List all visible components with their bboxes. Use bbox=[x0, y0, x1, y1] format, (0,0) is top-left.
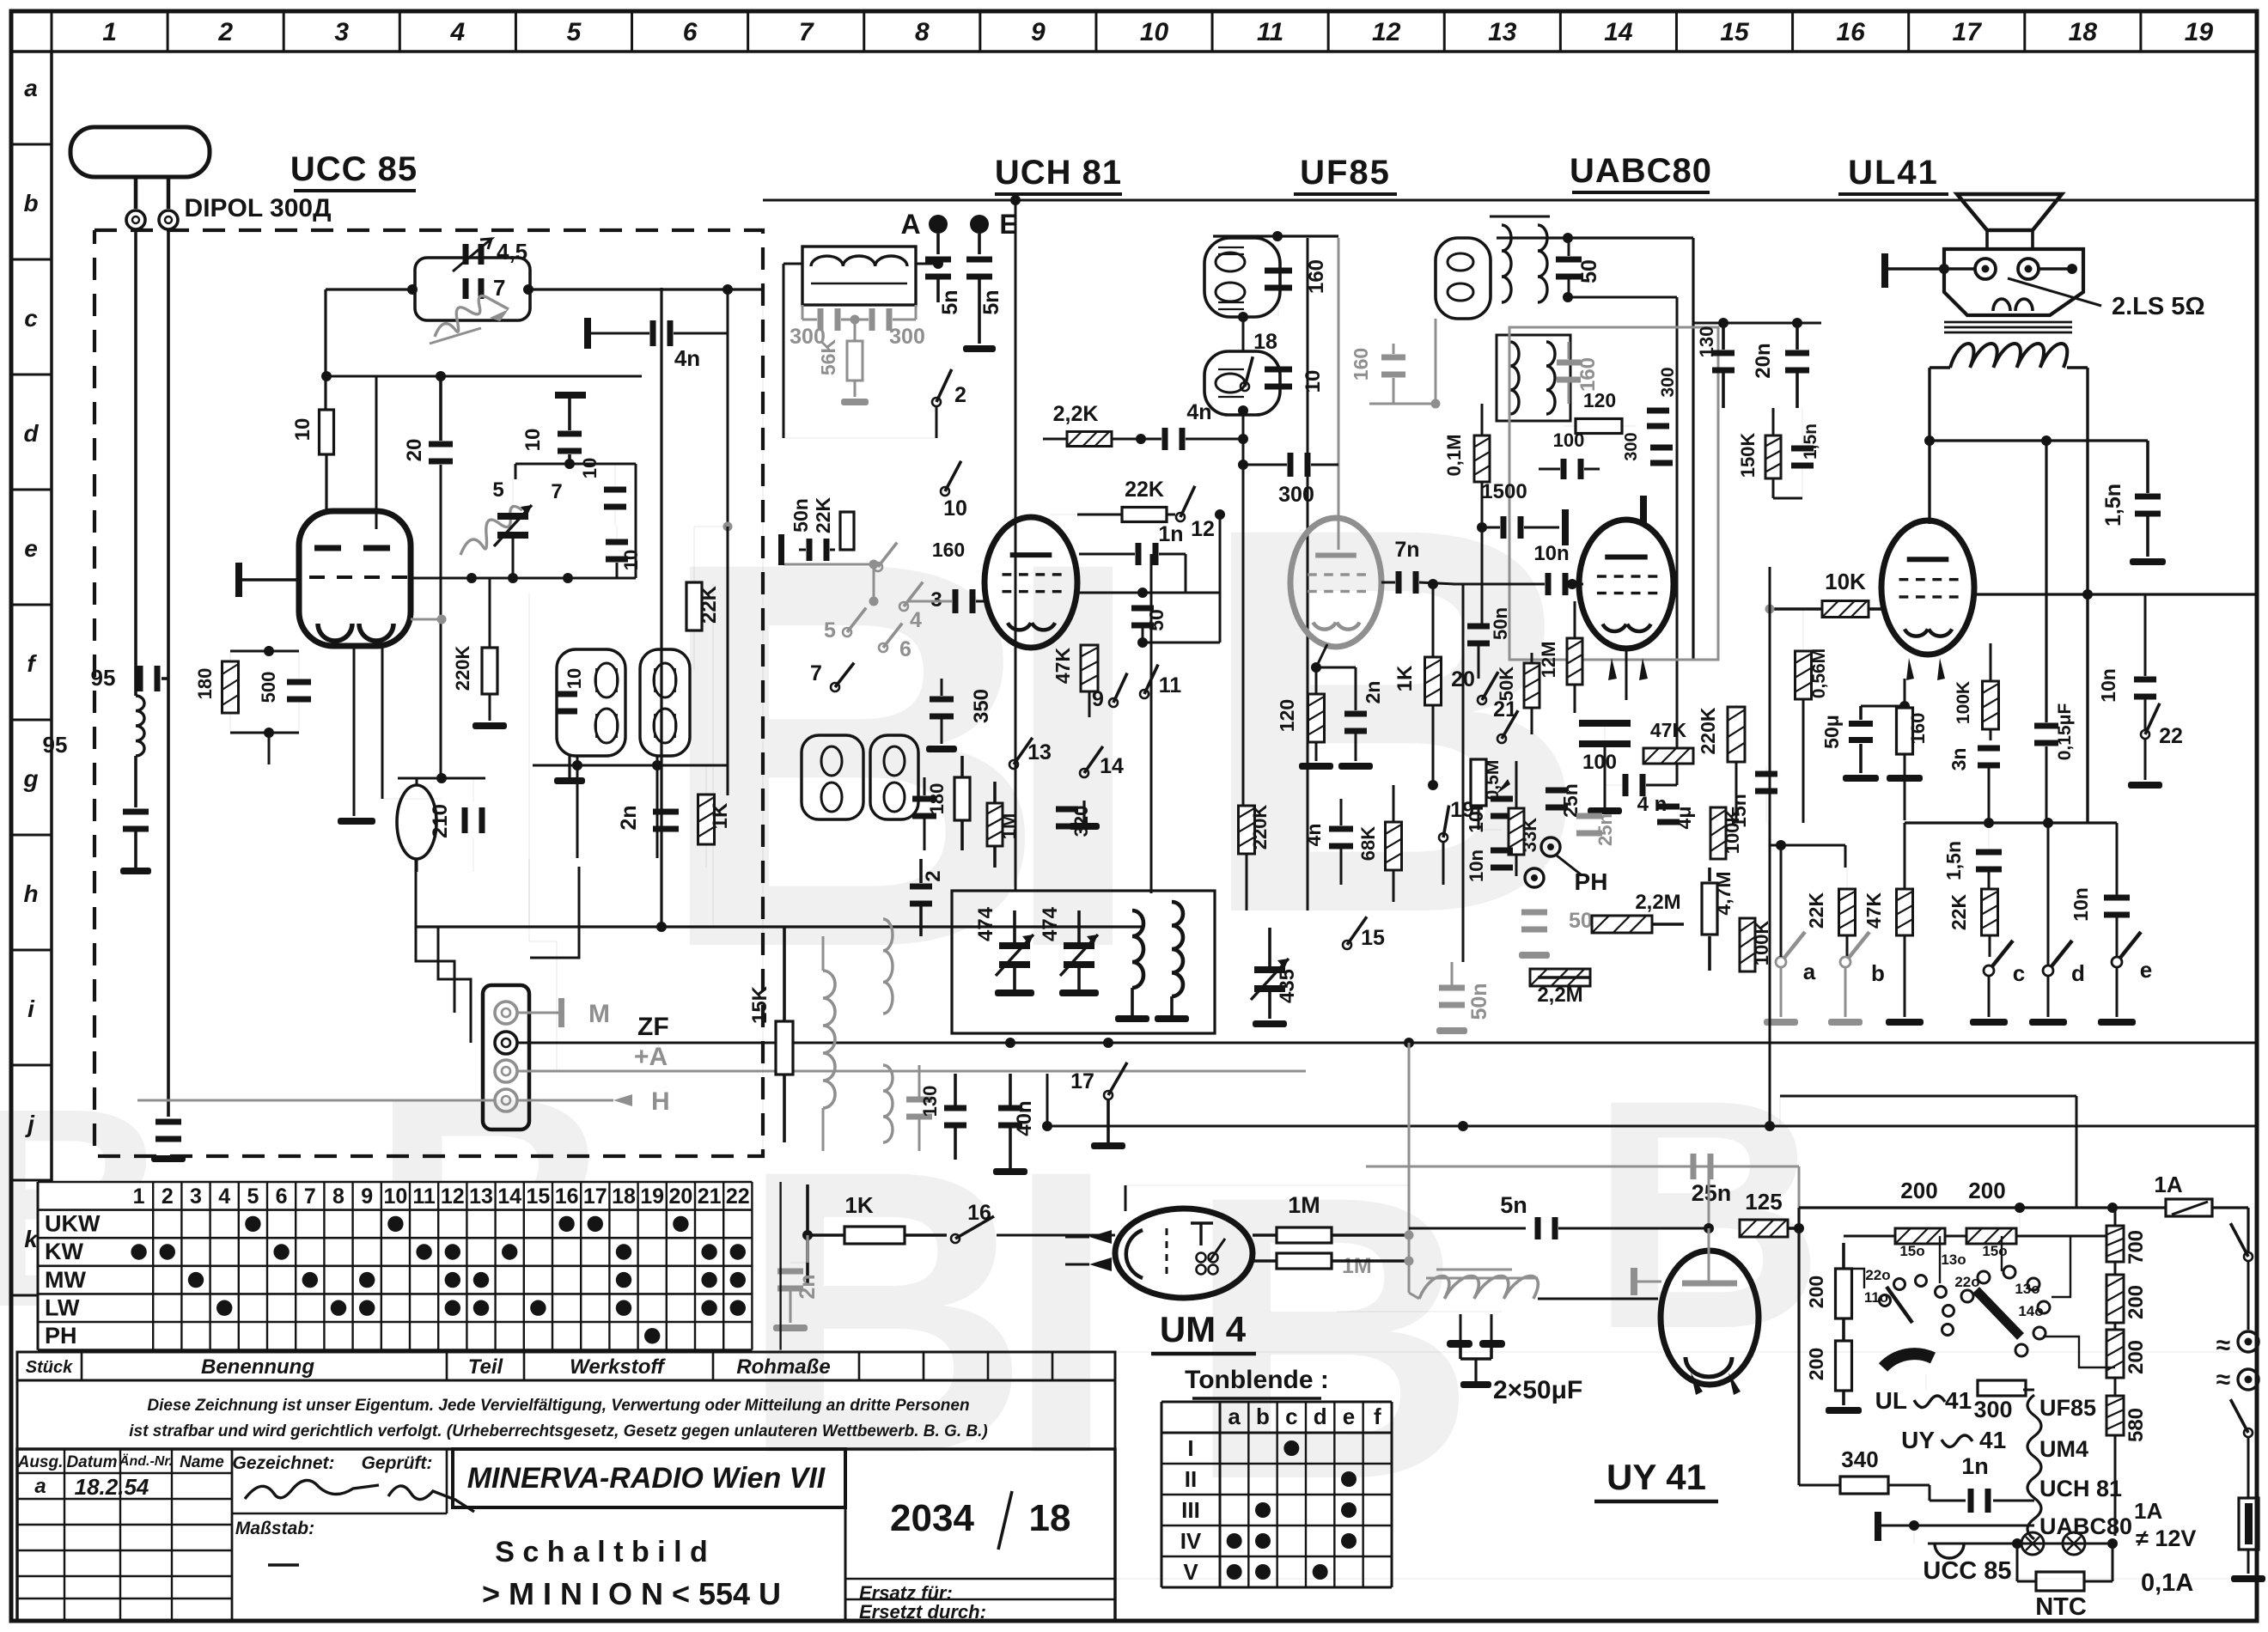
svg-text:1M: 1M bbox=[1342, 1254, 1372, 1278]
svg-text:5n: 5n bbox=[938, 289, 962, 314]
svg-text:220K: 220K bbox=[1697, 707, 1719, 754]
svg-text:UF85: UF85 bbox=[2039, 1395, 2096, 1421]
svg-text:33K: 33K bbox=[1519, 818, 1540, 852]
svg-text:UCC 85: UCC 85 bbox=[290, 150, 418, 188]
svg-text:220K: 220K bbox=[452, 646, 473, 691]
svg-text:c: c bbox=[1285, 1404, 1297, 1429]
svg-text:7: 7 bbox=[810, 661, 822, 685]
svg-text:15K: 15K bbox=[748, 985, 771, 1024]
svg-text:50: 50 bbox=[1145, 609, 1168, 631]
svg-text:c: c bbox=[2013, 960, 2025, 986]
svg-text:M: M bbox=[588, 1000, 610, 1028]
svg-text:41: 41 bbox=[1945, 1387, 1972, 1414]
svg-text:200: 200 bbox=[1968, 1178, 2005, 1203]
svg-text:22K: 22K bbox=[1805, 892, 1827, 929]
svg-text:15: 15 bbox=[526, 1184, 550, 1209]
svg-text:0,1A: 0,1A bbox=[2141, 1569, 2193, 1597]
svg-text:≈: ≈ bbox=[2216, 1331, 2230, 1360]
svg-text:15n: 15n bbox=[1728, 794, 1750, 828]
svg-text:10n: 10n bbox=[2070, 887, 2092, 922]
svg-text:0,1M: 0,1M bbox=[1443, 435, 1465, 477]
svg-text:Geprüft:: Geprüft: bbox=[362, 1453, 433, 1473]
svg-text:1: 1 bbox=[102, 18, 117, 46]
svg-text:Diese Zeichnung ist unser Eige: Diese Zeichnung ist unser Eigentum. Jede… bbox=[147, 1397, 969, 1415]
svg-text:4: 4 bbox=[450, 18, 466, 46]
svg-text:1: 1 bbox=[133, 1184, 145, 1209]
svg-text:7n: 7n bbox=[1394, 538, 1419, 562]
svg-text:2n: 2n bbox=[1362, 681, 1384, 704]
svg-text:UY 41: UY 41 bbox=[1606, 1457, 1706, 1497]
svg-text:5: 5 bbox=[567, 18, 582, 46]
svg-text:Maßstab:: Maßstab: bbox=[235, 1519, 314, 1538]
svg-text:130: 130 bbox=[1696, 326, 1717, 358]
svg-text:5n: 5n bbox=[979, 289, 1003, 314]
svg-text:11: 11 bbox=[412, 1184, 436, 1209]
svg-text:Datum: Datum bbox=[66, 1453, 117, 1471]
svg-text:18: 18 bbox=[1029, 1497, 1071, 1539]
svg-text:160: 160 bbox=[932, 539, 965, 561]
svg-text:Ausg.: Ausg. bbox=[17, 1453, 64, 1471]
svg-text:16: 16 bbox=[555, 1184, 579, 1209]
svg-text:13: 13 bbox=[469, 1184, 493, 1209]
svg-text:b: b bbox=[1871, 960, 1885, 986]
svg-text:47K: 47K bbox=[1650, 719, 1687, 741]
svg-text:V: V bbox=[1183, 1559, 1198, 1585]
svg-text:3: 3 bbox=[190, 1184, 202, 1209]
svg-text:1n: 1n bbox=[1961, 1453, 1989, 1479]
svg-text:UCH 81: UCH 81 bbox=[2039, 1476, 2122, 1501]
svg-text:350: 350 bbox=[970, 689, 993, 723]
svg-text:40n: 40n bbox=[1013, 1100, 1036, 1136]
svg-text:+A: +A bbox=[634, 1043, 668, 1071]
svg-text:a: a bbox=[1803, 959, 1816, 984]
svg-text:4μ: 4μ bbox=[1673, 807, 1695, 830]
svg-text:1A: 1A bbox=[2154, 1172, 2182, 1197]
svg-text:MINERVA-RADIO Wien VII: MINERVA-RADIO Wien VII bbox=[467, 1462, 826, 1495]
svg-text:0,56M: 0,56M bbox=[1809, 649, 1829, 698]
svg-text:d: d bbox=[1314, 1404, 1327, 1429]
svg-text:20n: 20n bbox=[1752, 343, 1775, 378]
svg-text:0,5M: 0,5M bbox=[1483, 760, 1503, 801]
svg-text:II: II bbox=[1185, 1466, 1197, 1492]
svg-text:NTC: NTC bbox=[2035, 1593, 2087, 1621]
svg-text:22o: 22o bbox=[1865, 1267, 1890, 1283]
svg-text:Rohmaße: Rohmaße bbox=[736, 1355, 830, 1379]
svg-text:18: 18 bbox=[2069, 18, 2098, 46]
svg-text:UCH 81: UCH 81 bbox=[995, 154, 1122, 192]
svg-text:B: B bbox=[1589, 1032, 1825, 1397]
svg-text:100: 100 bbox=[1553, 429, 1585, 451]
svg-text:i: i bbox=[27, 996, 35, 1022]
svg-text:10K: 10K bbox=[1825, 569, 1866, 594]
svg-text:50n: 50n bbox=[1467, 983, 1491, 1020]
svg-text:17: 17 bbox=[1953, 18, 1983, 46]
svg-text:21: 21 bbox=[698, 1184, 722, 1209]
svg-text:474: 474 bbox=[1039, 906, 1062, 941]
svg-text:Tonblende :: Tonblende : bbox=[1185, 1366, 1329, 1394]
svg-text:LW: LW bbox=[45, 1294, 80, 1320]
svg-text:16: 16 bbox=[1836, 18, 1865, 46]
svg-text:2: 2 bbox=[954, 383, 966, 407]
svg-text:13: 13 bbox=[1027, 740, 1052, 764]
svg-text:UF85: UF85 bbox=[1300, 154, 1391, 192]
svg-text:50K: 50K bbox=[1496, 667, 1517, 701]
svg-text:12: 12 bbox=[1191, 517, 1215, 541]
svg-text:50μ: 50μ bbox=[1820, 715, 1843, 749]
svg-text:7: 7 bbox=[304, 1184, 316, 1209]
svg-text:1n: 1n bbox=[1158, 522, 1183, 546]
svg-text:10: 10 bbox=[1302, 370, 1325, 393]
svg-text:Ersetzt durch:: Ersetzt durch: bbox=[859, 1601, 986, 1623]
svg-text:g: g bbox=[22, 765, 38, 792]
svg-text:500: 500 bbox=[258, 672, 279, 703]
svg-text:2: 2 bbox=[217, 18, 233, 46]
svg-text:100: 100 bbox=[1582, 751, 1617, 774]
svg-text:17: 17 bbox=[583, 1184, 607, 1209]
svg-text:125: 125 bbox=[1745, 1189, 1782, 1215]
svg-text:b: b bbox=[23, 190, 38, 216]
svg-text:300: 300 bbox=[1973, 1397, 2012, 1422]
svg-text:Benennung: Benennung bbox=[201, 1355, 314, 1379]
svg-text:1,5n: 1,5n bbox=[2101, 484, 2125, 527]
svg-text:1,5n: 1,5n bbox=[1942, 841, 1965, 880]
svg-text:19: 19 bbox=[640, 1184, 664, 1209]
svg-text:18.2.54: 18.2.54 bbox=[75, 1474, 149, 1500]
svg-text:UABC80: UABC80 bbox=[1570, 152, 1712, 190]
svg-text:9: 9 bbox=[1092, 687, 1104, 711]
svg-text:120: 120 bbox=[1276, 699, 1298, 732]
svg-text:c: c bbox=[24, 305, 38, 332]
svg-text:MW: MW bbox=[45, 1267, 86, 1293]
svg-text:200: 200 bbox=[1805, 1348, 1827, 1380]
svg-text:10n: 10n bbox=[1533, 542, 1569, 565]
svg-text:68K: 68K bbox=[1357, 826, 1379, 861]
svg-text:e: e bbox=[1343, 1404, 1355, 1429]
svg-text:I: I bbox=[1187, 1435, 1193, 1461]
svg-text:Stück: Stück bbox=[26, 1358, 73, 1377]
svg-text:> M I N I O N < 554 U: > M I N I O N < 554 U bbox=[482, 1576, 781, 1611]
svg-text:580: 580 bbox=[2125, 1408, 2148, 1442]
svg-text:PH: PH bbox=[45, 1323, 77, 1349]
svg-text:9: 9 bbox=[361, 1184, 373, 1209]
svg-text:e: e bbox=[24, 535, 38, 562]
svg-text:S c h a l t b i l d: S c h a l t b i l d bbox=[495, 1536, 707, 1568]
svg-text:200: 200 bbox=[1900, 1178, 1937, 1203]
svg-text:13: 13 bbox=[1488, 18, 1517, 46]
svg-text:e: e bbox=[2140, 957, 2152, 983]
svg-text:13o: 13o bbox=[1941, 1251, 1966, 1268]
svg-text:1K: 1K bbox=[709, 802, 732, 829]
svg-text:47K: 47K bbox=[1863, 892, 1885, 929]
svg-text:2×50μF: 2×50μF bbox=[1493, 1376, 1582, 1404]
svg-text:41: 41 bbox=[1979, 1427, 2006, 1453]
svg-text:25n: 25n bbox=[1692, 1180, 1732, 1206]
svg-text:160: 160 bbox=[1576, 357, 1600, 392]
svg-text:III: III bbox=[1181, 1497, 1200, 1523]
svg-text:12: 12 bbox=[441, 1184, 465, 1209]
svg-text:300: 300 bbox=[889, 325, 925, 349]
svg-text:6: 6 bbox=[276, 1184, 288, 1209]
svg-text:15: 15 bbox=[1720, 18, 1750, 46]
svg-text:4: 4 bbox=[910, 608, 922, 632]
svg-text:50: 50 bbox=[1577, 259, 1601, 283]
svg-text:Teil: Teil bbox=[468, 1355, 504, 1379]
svg-text:0,15μF: 0,15μF bbox=[2055, 703, 2075, 761]
svg-text:320: 320 bbox=[1070, 806, 1092, 837]
svg-text:d: d bbox=[23, 420, 39, 447]
svg-text:Änd.-Nr.: Änd.-Nr. bbox=[119, 1453, 173, 1469]
svg-text:16: 16 bbox=[967, 1201, 991, 1225]
svg-text:22: 22 bbox=[726, 1184, 750, 1209]
svg-text:2n: 2n bbox=[617, 805, 641, 830]
svg-text:1K: 1K bbox=[844, 1192, 873, 1218]
svg-text:Name: Name bbox=[180, 1453, 224, 1471]
svg-text:a: a bbox=[24, 75, 38, 101]
svg-text:4,5: 4,5 bbox=[497, 239, 527, 265]
svg-text:10: 10 bbox=[291, 418, 314, 441]
svg-text:13o: 13o bbox=[2015, 1281, 2039, 1297]
svg-text:1M: 1M bbox=[1288, 1192, 1320, 1218]
svg-text:≈: ≈ bbox=[2216, 1366, 2230, 1394]
svg-text:ZF: ZF bbox=[637, 1013, 669, 1041]
svg-text:11o: 11o bbox=[1864, 1289, 1888, 1306]
svg-text:f: f bbox=[1374, 1404, 1381, 1429]
svg-text:2n: 2n bbox=[796, 1274, 820, 1299]
svg-text:10: 10 bbox=[521, 429, 545, 452]
svg-text:h: h bbox=[23, 880, 38, 907]
svg-text:3n: 3n bbox=[1948, 748, 1970, 771]
svg-text:1500: 1500 bbox=[1481, 480, 1527, 503]
svg-text:340: 340 bbox=[1841, 1446, 1878, 1472]
svg-text:435: 435 bbox=[1276, 969, 1299, 1003]
svg-text:14o: 14o bbox=[2018, 1303, 2043, 1319]
svg-text:200: 200 bbox=[1805, 1276, 1827, 1308]
svg-text:160: 160 bbox=[1305, 259, 1328, 294]
svg-text:12M: 12M bbox=[1538, 642, 1559, 679]
svg-text:A: A bbox=[900, 209, 920, 240]
svg-text:210: 210 bbox=[429, 804, 452, 838]
svg-text:IV: IV bbox=[1180, 1528, 1202, 1554]
svg-text:6: 6 bbox=[683, 18, 698, 46]
svg-text:2: 2 bbox=[922, 870, 945, 881]
svg-text:5: 5 bbox=[824, 618, 836, 642]
svg-text:4,7M: 4,7M bbox=[1712, 871, 1735, 915]
svg-text:22: 22 bbox=[2159, 724, 2183, 748]
svg-text:10: 10 bbox=[1140, 18, 1169, 46]
svg-text:15o: 15o bbox=[1982, 1243, 2007, 1259]
svg-text:7: 7 bbox=[493, 275, 505, 301]
svg-text:1K: 1K bbox=[1393, 665, 1417, 691]
svg-text:Gezeichnet:: Gezeichnet: bbox=[232, 1453, 334, 1473]
svg-text:160: 160 bbox=[1350, 348, 1372, 381]
svg-text:22K: 22K bbox=[812, 497, 834, 534]
svg-text:180: 180 bbox=[194, 668, 216, 700]
svg-text:18: 18 bbox=[612, 1184, 636, 1209]
svg-text:14: 14 bbox=[1100, 754, 1124, 778]
svg-text:14: 14 bbox=[497, 1184, 521, 1209]
svg-text:10: 10 bbox=[943, 496, 967, 521]
svg-text:21: 21 bbox=[1493, 697, 1517, 722]
svg-text:2.LS 5Ω: 2.LS 5Ω bbox=[2112, 293, 2205, 320]
svg-text:11: 11 bbox=[1159, 673, 1182, 697]
svg-text:UY: UY bbox=[1901, 1427, 1935, 1453]
svg-text:2,2M: 2,2M bbox=[1635, 891, 1680, 914]
svg-text:UL41: UL41 bbox=[1848, 154, 1939, 192]
svg-text:5n: 5n bbox=[1500, 1192, 1527, 1218]
svg-text:7: 7 bbox=[799, 18, 814, 46]
svg-text:15: 15 bbox=[1361, 926, 1385, 950]
svg-text:50n: 50n bbox=[790, 498, 812, 533]
svg-text:UKW: UKW bbox=[45, 1211, 101, 1237]
svg-text:2,2M: 2,2M bbox=[1537, 983, 1582, 1007]
svg-text:12: 12 bbox=[1372, 18, 1401, 46]
svg-text:1M: 1M bbox=[998, 813, 1020, 840]
svg-text:220K: 220K bbox=[1249, 805, 1271, 850]
svg-text:8: 8 bbox=[915, 18, 930, 46]
svg-text:Werkstoff: Werkstoff bbox=[570, 1355, 666, 1379]
svg-text:300: 300 bbox=[1278, 483, 1314, 507]
svg-text:KW: KW bbox=[45, 1239, 83, 1264]
svg-text:≠ 12V: ≠ 12V bbox=[2136, 1525, 2196, 1551]
svg-text:474: 474 bbox=[974, 906, 997, 941]
svg-text:8: 8 bbox=[332, 1184, 344, 1209]
svg-text:300: 300 bbox=[1658, 367, 1678, 397]
svg-text:22K: 22K bbox=[698, 585, 721, 624]
svg-text:10: 10 bbox=[620, 550, 642, 570]
svg-text:ist strafbar und wird gerichtl: ist strafbar und wird gerichtlich verfol… bbox=[129, 1422, 987, 1440]
svg-text:200: 200 bbox=[2125, 1340, 2148, 1374]
svg-text:20: 20 bbox=[668, 1184, 692, 1209]
svg-text:I: I bbox=[1005, 1087, 1118, 1538]
svg-text:H: H bbox=[651, 1087, 670, 1116]
svg-text:25n: 25n bbox=[1559, 783, 1582, 818]
svg-text:17: 17 bbox=[1070, 1069, 1094, 1093]
svg-text:UM4: UM4 bbox=[2039, 1436, 2088, 1462]
svg-text:3: 3 bbox=[334, 18, 349, 46]
svg-text:d: d bbox=[2071, 960, 2085, 986]
svg-text:7: 7 bbox=[551, 480, 562, 503]
svg-text:9: 9 bbox=[1031, 18, 1046, 46]
svg-text:22K: 22K bbox=[1948, 894, 1970, 931]
svg-text:22K: 22K bbox=[1125, 478, 1164, 502]
svg-text:95: 95 bbox=[43, 732, 68, 758]
svg-text:20: 20 bbox=[403, 439, 426, 462]
svg-text:47K: 47K bbox=[1052, 648, 1074, 685]
svg-text:DIPOL 300Д: DIPOL 300Д bbox=[185, 194, 332, 222]
svg-text:a: a bbox=[1228, 1404, 1241, 1429]
svg-text:4n: 4n bbox=[1302, 824, 1325, 847]
svg-text:5: 5 bbox=[247, 1184, 259, 1209]
svg-text:14: 14 bbox=[1604, 18, 1633, 46]
svg-text:19: 19 bbox=[2185, 18, 2214, 46]
svg-text:18: 18 bbox=[1253, 330, 1277, 354]
svg-text:130: 130 bbox=[919, 1086, 941, 1117]
svg-text:UABC80: UABC80 bbox=[2039, 1513, 2132, 1539]
svg-text:25n: 25n bbox=[1594, 813, 1616, 846]
svg-text:UM 4: UM 4 bbox=[1160, 1309, 1247, 1349]
svg-text:10: 10 bbox=[383, 1184, 407, 1209]
svg-text:2034: 2034 bbox=[890, 1497, 974, 1539]
svg-text:300: 300 bbox=[1622, 432, 1641, 460]
svg-text:b: b bbox=[1256, 1404, 1270, 1429]
svg-text:11: 11 bbox=[1257, 18, 1283, 46]
svg-text:120: 120 bbox=[1583, 389, 1616, 411]
svg-text:150K: 150K bbox=[1737, 433, 1759, 478]
svg-text:10n: 10n bbox=[2097, 668, 2119, 703]
svg-text:2,2K: 2,2K bbox=[1053, 402, 1099, 426]
svg-text:1,5n: 1,5n bbox=[1801, 423, 1820, 460]
svg-text:UL: UL bbox=[1875, 1387, 1907, 1414]
svg-text:6: 6 bbox=[899, 637, 911, 661]
svg-text:4n: 4n bbox=[674, 345, 700, 371]
svg-text:a: a bbox=[34, 1475, 46, 1498]
svg-text:5: 5 bbox=[492, 478, 503, 502]
svg-text:22o: 22o bbox=[1954, 1274, 1979, 1290]
svg-text:10n: 10n bbox=[1466, 849, 1487, 882]
svg-text:200: 200 bbox=[2125, 1285, 2148, 1319]
svg-text:56K: 56K bbox=[817, 339, 839, 376]
svg-text:1A: 1A bbox=[2134, 1498, 2162, 1524]
svg-text:100K: 100K bbox=[1954, 681, 1973, 724]
svg-text:2: 2 bbox=[162, 1184, 174, 1209]
svg-text:160: 160 bbox=[1907, 713, 1929, 745]
svg-text:700: 700 bbox=[2125, 1230, 2148, 1264]
svg-text:10: 10 bbox=[579, 458, 601, 478]
svg-text:UCC 85: UCC 85 bbox=[1923, 1557, 2011, 1585]
svg-text:50n: 50n bbox=[1490, 607, 1511, 640]
svg-text:10: 10 bbox=[564, 668, 585, 689]
svg-text:4: 4 bbox=[218, 1184, 230, 1209]
